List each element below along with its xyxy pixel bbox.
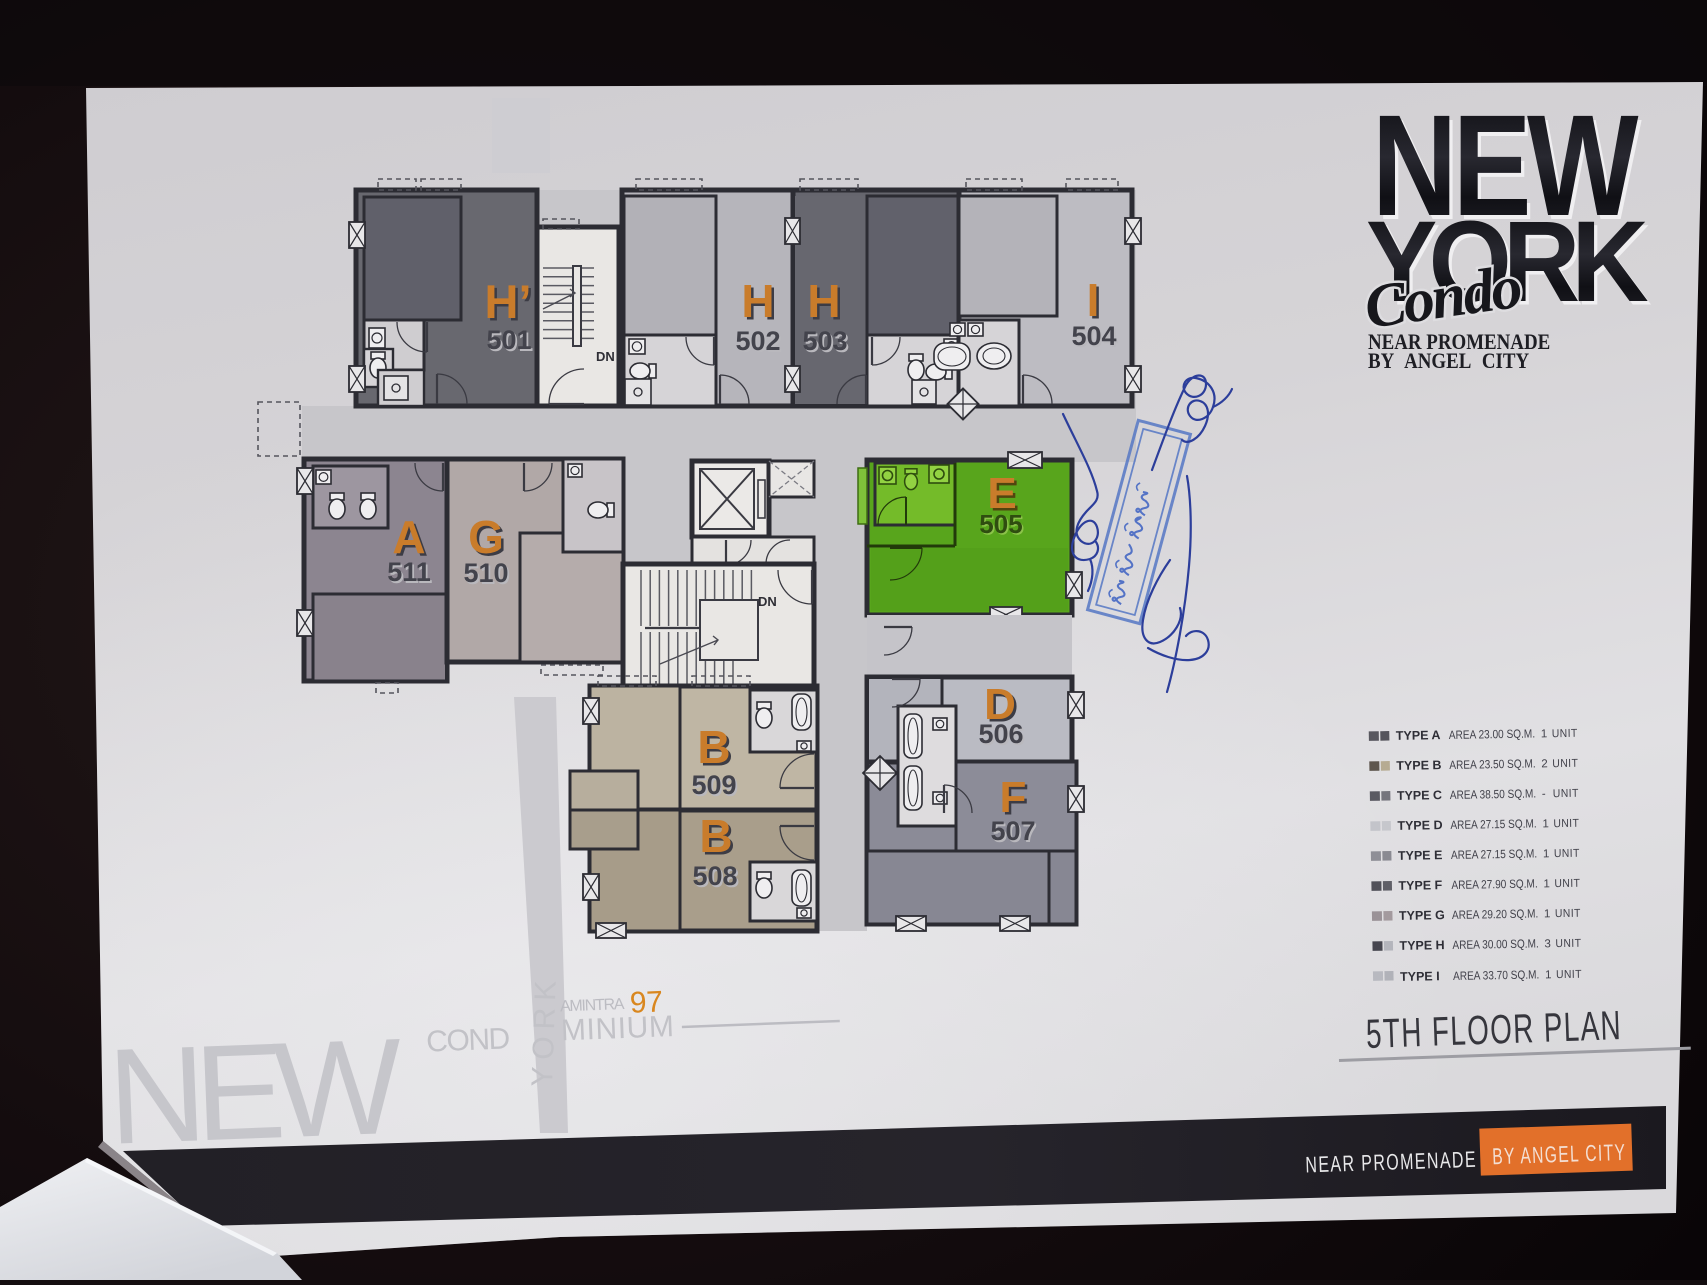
svg-text:BY ANGEL CITY: BY ANGEL CITY <box>1492 1140 1627 1170</box>
svg-text:TYPE I: TYPE I <box>1400 969 1440 984</box>
svg-text:97: 97 <box>629 985 663 1019</box>
svg-text:TYPE F: TYPE F <box>1398 878 1442 893</box>
svg-text:UNIT: UNIT <box>1553 787 1579 800</box>
svg-text:B: B <box>697 721 730 773</box>
svg-text:TYPE E: TYPE E <box>1398 848 1443 863</box>
svg-text:TYPE A: TYPE A <box>1396 728 1441 743</box>
svg-text:UNIT: UNIT <box>1552 727 1578 740</box>
svg-text:3: 3 <box>1544 938 1551 950</box>
svg-text:1: 1 <box>1543 848 1550 860</box>
svg-text:501: 501 <box>486 325 531 355</box>
svg-text:509: 509 <box>691 770 736 800</box>
svg-text:-: - <box>1542 788 1546 800</box>
svg-text:TYPE H: TYPE H <box>1399 938 1444 953</box>
svg-text:507: 507 <box>990 816 1035 846</box>
svg-text:511: 511 <box>387 557 431 587</box>
svg-text:UNIT: UNIT <box>1554 877 1580 890</box>
svg-text:1: 1 <box>1545 969 1552 981</box>
svg-text:AREA 38.50 SQ.M.: AREA 38.50 SQ.M. <box>1450 788 1536 802</box>
svg-text:1: 1 <box>1543 878 1550 890</box>
svg-text:502: 502 <box>735 326 780 356</box>
svg-text:AREA 27.15 SQ.M.: AREA 27.15 SQ.M. <box>1451 848 1537 862</box>
svg-text:504: 504 <box>1071 321 1116 351</box>
svg-text:TYPE D: TYPE D <box>1397 818 1442 833</box>
svg-text:5TH FLOOR PLAN: 5TH FLOOR PLAN <box>1365 1003 1622 1058</box>
svg-text:AREA 33.70 SQ.M.: AREA 33.70 SQ.M. <box>1453 969 1539 983</box>
svg-text:506: 506 <box>978 719 1023 749</box>
svg-text:2: 2 <box>1541 758 1548 770</box>
svg-text:A: A <box>392 511 425 563</box>
svg-text:TYPE C: TYPE C <box>1397 788 1442 803</box>
svg-text:503: 503 <box>802 326 847 356</box>
svg-text:510: 510 <box>463 558 508 588</box>
svg-text:BY ANGEL CITY: BY ANGEL CITY <box>1368 350 1529 374</box>
svg-text:AREA 23.00 SQ.M.: AREA 23.00 SQ.M. <box>1449 728 1535 742</box>
svg-text:G: G <box>468 511 504 563</box>
svg-text:COND: COND <box>426 1022 513 1058</box>
svg-text:AMINTRA: AMINTRA <box>560 996 627 1016</box>
svg-text:I: I <box>1087 274 1100 326</box>
svg-text:1: 1 <box>1541 728 1548 740</box>
svg-text:AREA 23.50 SQ.M.: AREA 23.50 SQ.M. <box>1449 758 1535 772</box>
svg-text:UNIT: UNIT <box>1553 817 1579 830</box>
svg-text:TYPE G: TYPE G <box>1399 908 1445 923</box>
svg-text:UNIT: UNIT <box>1554 847 1580 860</box>
svg-text:UNIT: UNIT <box>1555 937 1581 950</box>
svg-text:H’: H’ <box>485 275 532 328</box>
svg-text:AREA 27.15 SQ.M.: AREA 27.15 SQ.M. <box>1450 818 1536 832</box>
svg-text:UNIT: UNIT <box>1556 968 1582 981</box>
svg-text:505: 505 <box>979 509 1022 539</box>
svg-text:DN: DN <box>596 349 615 364</box>
svg-text:508: 508 <box>692 861 737 891</box>
svg-text:TYPE B: TYPE B <box>1396 758 1441 773</box>
svg-text:H: H <box>807 275 840 327</box>
svg-text:AREA 27.90 SQ.M.: AREA 27.90 SQ.M. <box>1451 878 1537 892</box>
svg-text:AREA 29.20 SQ.M.: AREA 29.20 SQ.M. <box>1452 908 1538 922</box>
svg-text:DN: DN <box>758 594 777 609</box>
svg-text:H: H <box>741 275 774 327</box>
svg-text:UNIT: UNIT <box>1552 757 1578 770</box>
svg-text:1: 1 <box>1544 908 1551 920</box>
svg-text:1: 1 <box>1542 818 1549 830</box>
svg-text:AREA 30.00 SQ.M.: AREA 30.00 SQ.M. <box>1452 938 1538 952</box>
svg-text:B: B <box>699 810 732 862</box>
svg-text:UNIT: UNIT <box>1555 907 1581 920</box>
svg-text:F: F <box>1000 773 1027 822</box>
